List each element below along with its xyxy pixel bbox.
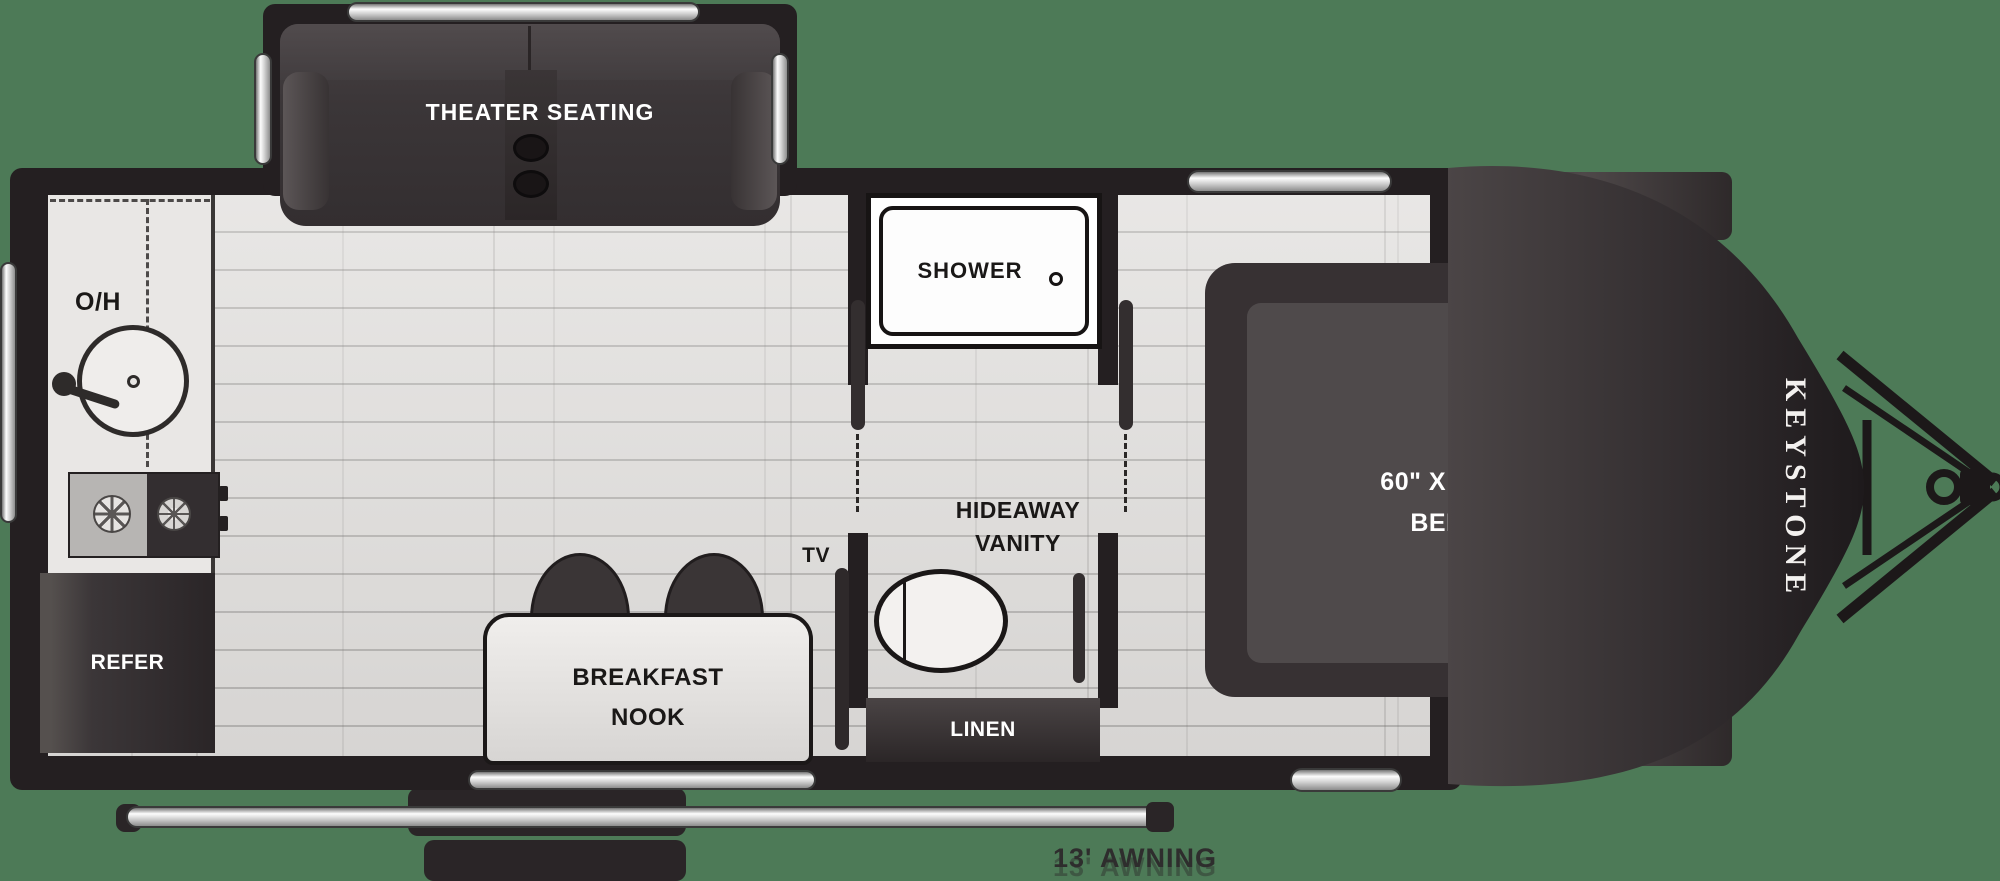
slideout-window-top (347, 2, 700, 22)
vanity-door-panel (1073, 573, 1085, 683)
pocket-door-right-bar (1119, 300, 1133, 430)
linen-label: LINEN (950, 718, 1016, 742)
vanity-wall-left (848, 533, 868, 708)
awning-bar-right-cap (1146, 802, 1174, 832)
floorplan-diagram: 13' AWNING O/H REFER THEATER SEATING SHO… (0, 0, 2000, 881)
keystone-brand-label: KEYSTONE (1778, 349, 1812, 629)
overhead-cabinet-label: O/H (48, 288, 148, 317)
shower-stall: SHOWER (866, 193, 1102, 349)
refrigerator-label: REFER (91, 651, 165, 675)
bedroom-window-top (1187, 170, 1392, 193)
bedroom-window-bottom (1290, 768, 1402, 792)
theater-armrest-left (283, 72, 329, 210)
stove-knob-2 (219, 516, 228, 531)
breakfast-nook-table: BREAKFAST NOOK (483, 613, 813, 765)
linen-cabinet: LINEN (866, 698, 1100, 762)
stove-knob-1 (219, 486, 228, 501)
tv-label: TV (775, 544, 830, 568)
sink-drain (127, 375, 140, 388)
shower-label: SHOWER (918, 258, 1023, 284)
awning-label: 13' AWNING (1015, 843, 1255, 874)
hideaway-vanity-label-line1: HIDEAWAY (900, 494, 1136, 527)
shower-drain (1049, 272, 1063, 286)
breakfast-nook-label-line1: BREAKFAST (572, 658, 723, 698)
refrigerator: REFER (40, 573, 215, 753)
breakfast-nook-label-line2: NOOK (611, 698, 685, 738)
awning-bar (126, 806, 1160, 828)
stove-burner-left (93, 495, 131, 533)
pocket-door-left-dash (856, 434, 859, 512)
galley-window-left (0, 262, 17, 523)
trailer-nose-and-hitch (1420, 120, 2000, 820)
stove (68, 472, 220, 558)
theater-seating-label: THEATER SEATING (390, 99, 690, 126)
entry-step-lower (424, 840, 686, 881)
toilet (874, 569, 1008, 673)
overhead-cabinet-dash-top (50, 199, 210, 202)
toilet-tank-line (903, 580, 906, 662)
slideout-window-left (254, 53, 272, 165)
stove-burner-right (157, 497, 191, 531)
cupholder-2 (513, 170, 549, 198)
slideout-window-right (771, 53, 789, 165)
tv-panel (835, 568, 849, 750)
vanity-wall-right (1098, 533, 1118, 708)
entry-grab-rail (468, 770, 816, 790)
faucet-knob (52, 372, 76, 396)
pocket-door-left-bar (851, 300, 865, 430)
shower-pan: SHOWER (879, 206, 1089, 336)
cupholder-1 (513, 134, 549, 162)
